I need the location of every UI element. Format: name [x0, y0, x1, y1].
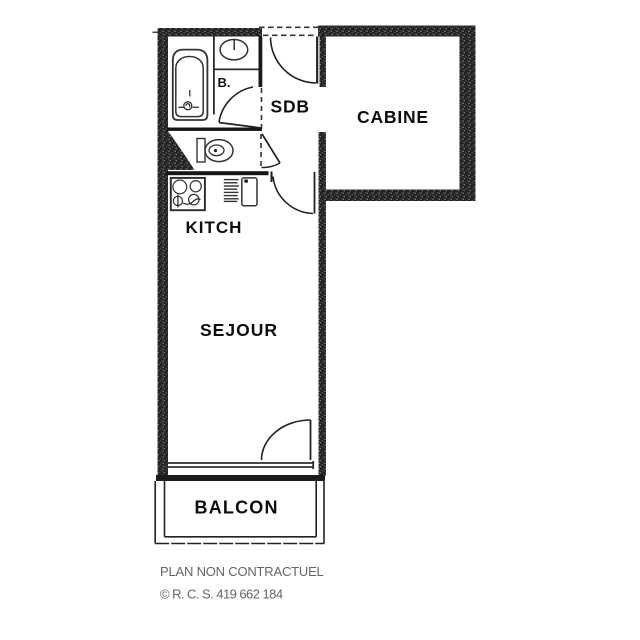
svg-text:SDB: SDB	[271, 97, 310, 117]
svg-text:KITCH: KITCH	[186, 218, 243, 237]
svg-text:B.: B.	[218, 75, 231, 90]
svg-text:BALCON: BALCON	[195, 497, 279, 517]
svg-text:SEJOUR: SEJOUR	[200, 320, 278, 340]
svg-text:PLAN NON CONTRACTUEL: PLAN NON CONTRACTUEL	[160, 564, 324, 579]
svg-text:© R. C. S. 419 662 184: © R. C. S. 419 662 184	[160, 587, 283, 602]
svg-text:CABINE: CABINE	[357, 107, 429, 127]
